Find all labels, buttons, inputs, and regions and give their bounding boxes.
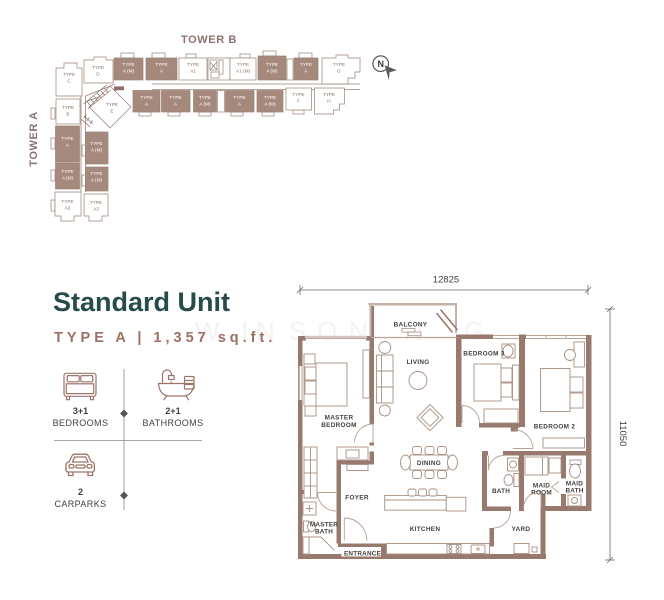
svg-text:MASTER: MASTER	[325, 415, 354, 422]
svg-text:TYPE: TYPE	[266, 62, 278, 67]
svg-text:BEDROOM 3: BEDROOM 3	[463, 351, 505, 358]
svg-text:TYPE: TYPE	[155, 62, 167, 67]
svg-text:TYPE: TYPE	[237, 62, 249, 67]
svg-text:TYPE A | 1,357 sq.ft.: TYPE A | 1,357 sq.ft.	[54, 330, 276, 346]
svg-text:TYPE: TYPE	[187, 62, 199, 67]
svg-text:BATH: BATH	[492, 488, 510, 495]
svg-text:A1 (M): A1 (M)	[236, 69, 251, 74]
svg-text:B: B	[66, 112, 69, 117]
svg-text:KITCHEN: KITCHEN	[410, 526, 441, 533]
svg-text:F: F	[297, 99, 300, 104]
svg-text:MAID: MAID	[566, 481, 583, 488]
svg-text:TYPE: TYPE	[333, 62, 345, 67]
svg-text:ROOM: ROOM	[531, 490, 552, 497]
svg-text:A (M): A (M)	[62, 176, 74, 181]
svg-text:TYPE: TYPE	[63, 72, 75, 77]
svg-text:TYPE: TYPE	[62, 105, 74, 110]
svg-text:TOWER B: TOWER B	[181, 34, 237, 46]
svg-text:A (M): A (M)	[91, 178, 103, 183]
svg-text:TYPE: TYPE	[169, 95, 181, 100]
svg-text:TYPE: TYPE	[106, 102, 118, 107]
svg-text:TYPE: TYPE	[90, 141, 102, 146]
svg-text:TYPE: TYPE	[61, 136, 73, 141]
svg-text:TYPE: TYPE	[292, 92, 304, 97]
svg-text:A (M): A (M)	[264, 102, 276, 107]
svg-text:A2: A2	[65, 206, 71, 211]
svg-text:BEDROOMS: BEDROOMS	[53, 418, 109, 428]
svg-text:MASTER: MASTER	[310, 522, 338, 529]
svg-text:BATH: BATH	[315, 529, 333, 536]
svg-text:S: S	[289, 316, 306, 346]
svg-text:A (M): A (M)	[123, 69, 135, 74]
svg-text:YARD: YARD	[512, 526, 531, 533]
svg-text:TYPE: TYPE	[264, 95, 276, 100]
svg-text:H: H	[327, 99, 330, 104]
svg-text:G: G	[337, 69, 341, 74]
svg-text:TOWER A: TOWER A	[28, 111, 40, 167]
svg-text:TYPE: TYPE	[140, 95, 152, 100]
svg-text:MAID: MAID	[533, 483, 550, 490]
svg-text:O: O	[317, 316, 337, 346]
svg-text:TYPE: TYPE	[233, 95, 245, 100]
svg-text:TYPE: TYPE	[199, 95, 211, 100]
svg-text:BALCONY: BALCONY	[394, 322, 428, 329]
svg-text:TYPE: TYPE	[122, 62, 134, 67]
svg-text:LIVING: LIVING	[406, 359, 429, 366]
svg-text:BATH: BATH	[565, 488, 583, 495]
svg-text:N: N	[349, 316, 368, 346]
svg-text:BATHROOMS: BATHROOMS	[143, 418, 204, 428]
svg-text:A3: A3	[93, 207, 99, 212]
svg-text:A (M): A (M)	[266, 69, 278, 74]
svg-text:A (M): A (M)	[199, 102, 211, 107]
svg-text:11050: 11050	[617, 421, 628, 447]
svg-text:TYPE: TYPE	[61, 169, 73, 174]
svg-text:G: G	[464, 316, 484, 346]
svg-text:TYPE: TYPE	[323, 92, 335, 97]
svg-text:TYPE: TYPE	[300, 62, 312, 67]
svg-text:Standard Unit: Standard Unit	[53, 287, 230, 317]
svg-text:ENTRANCE: ENTRANCE	[344, 551, 382, 558]
svg-text:3+1: 3+1	[73, 406, 88, 416]
svg-text:E: E	[110, 109, 113, 114]
svg-text:CARPARKS: CARPARKS	[54, 499, 106, 509]
svg-text:A (M): A (M)	[91, 148, 103, 153]
svg-text:TYPE: TYPE	[90, 200, 102, 205]
svg-text:2+1: 2+1	[165, 406, 180, 416]
svg-text:N: N	[377, 59, 384, 69]
svg-text:2: 2	[78, 487, 83, 497]
svg-text:BEDROOM: BEDROOM	[321, 422, 356, 429]
svg-text:BEDROOM 2: BEDROOM 2	[534, 424, 576, 431]
svg-text:DINING: DINING	[417, 460, 441, 467]
svg-text:TYPE: TYPE	[92, 65, 104, 70]
svg-text:FOYER: FOYER	[345, 495, 369, 502]
svg-text:12825: 12825	[433, 275, 459, 286]
svg-text:A1: A1	[190, 69, 196, 74]
svg-text:TYPE: TYPE	[61, 199, 73, 204]
svg-text:TYPE: TYPE	[90, 171, 102, 176]
